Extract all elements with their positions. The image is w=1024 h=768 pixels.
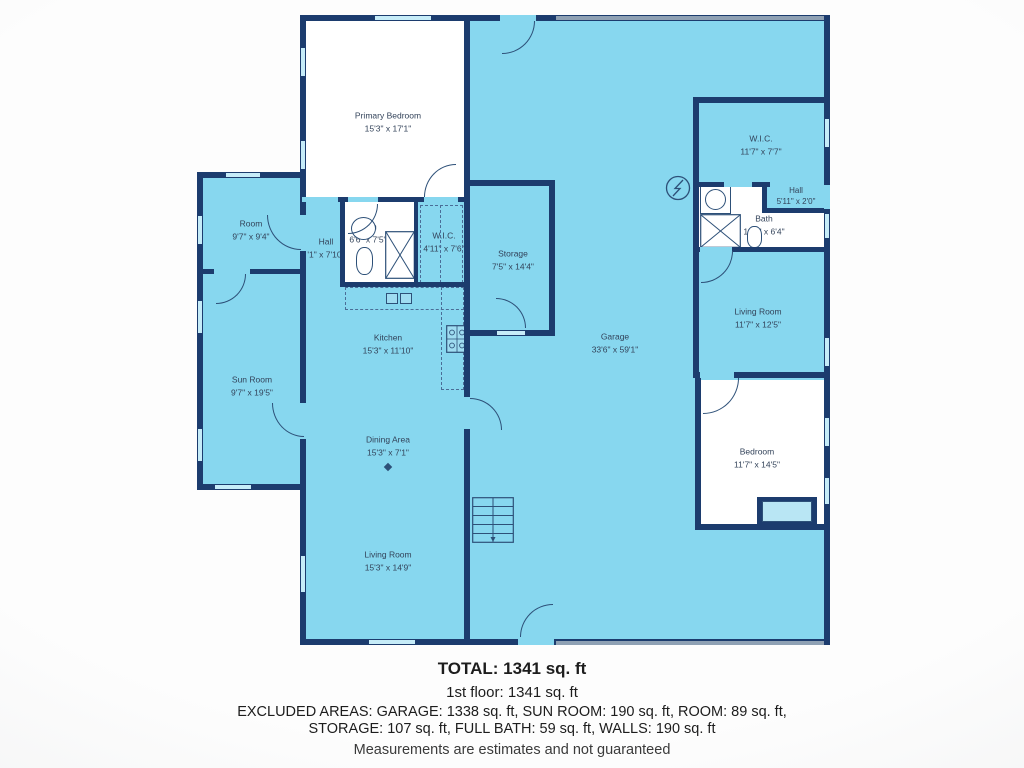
shower-icon bbox=[385, 231, 415, 279]
electrical-panel-icon bbox=[663, 173, 693, 203]
room-name: Hall bbox=[307, 236, 344, 249]
room-name: Hall bbox=[777, 185, 816, 196]
kitchen-sink-icon bbox=[386, 293, 398, 304]
room-label-kitchen: Kitchen 15'3" x 11'10" bbox=[363, 332, 414, 357]
room-dims: 15'3" x 14'9" bbox=[364, 561, 411, 574]
room-name: Storage bbox=[492, 248, 534, 261]
door-opening bbox=[824, 185, 830, 209]
window bbox=[214, 484, 252, 490]
window bbox=[197, 300, 203, 334]
floor-plan: Primary Bedroom 15'3" x 17'1" Room 9'7" … bbox=[0, 0, 1024, 768]
room-label-living-room-left: Living Room 15'3" x 14'9" bbox=[364, 549, 411, 574]
room-dims: 9'7" x 9'4" bbox=[232, 230, 269, 243]
wall bbox=[464, 180, 555, 186]
wall bbox=[762, 208, 830, 213]
room-name: Garage bbox=[592, 331, 639, 344]
door-opening bbox=[724, 182, 752, 187]
room-dims: 15'3" x 17'1" bbox=[355, 122, 421, 135]
room-dims: 9'7" x 19'5" bbox=[231, 386, 273, 399]
excluded-areas-text: EXCLUDED AREAS: GARAGE: 1338 sq. ft, SUN… bbox=[0, 704, 1024, 720]
wall bbox=[340, 197, 345, 287]
room-label-living-room-right: Living Room 11'7" x 12'5" bbox=[734, 306, 781, 331]
room-dims: 11'7" x 14'5" bbox=[734, 458, 780, 471]
toilet-icon bbox=[356, 247, 373, 275]
wall bbox=[693, 97, 830, 103]
room-dims: 11'7" x 12'5" bbox=[734, 318, 781, 331]
total-area-text: TOTAL: 1341 sq. ft bbox=[0, 659, 1024, 679]
room-name: Dining Area bbox=[366, 434, 410, 447]
room-label-dining-area: Dining Area 15'3" x 7'1" bbox=[366, 434, 410, 459]
kitchen-sink-icon bbox=[400, 293, 412, 304]
room-label-storage: Storage 7'5" x 14'4" bbox=[492, 248, 534, 273]
room-label-hall-right: Hall 5'11" x 2'0" bbox=[777, 185, 816, 207]
closet-bench bbox=[762, 501, 812, 522]
garage-door-strip bbox=[556, 641, 824, 645]
garage-door-strip bbox=[556, 16, 824, 20]
toilet-icon bbox=[747, 226, 762, 248]
room-label-room: Room 9'7" x 9'4" bbox=[232, 218, 269, 243]
door-opening bbox=[302, 197, 338, 202]
closet-dashed-rail bbox=[440, 205, 441, 283]
window bbox=[496, 330, 526, 336]
window bbox=[824, 213, 830, 239]
window bbox=[300, 47, 306, 77]
room-label-primary-bedroom: Primary Bedroom 15'3" x 17'1" bbox=[355, 110, 421, 135]
window bbox=[824, 417, 830, 447]
room-label-sun-room: Sun Room 9'7" x 19'5" bbox=[231, 374, 273, 399]
room-dims: 33'6" x 59'1" bbox=[592, 343, 639, 356]
shower-icon bbox=[700, 214, 741, 248]
room-dims: '1" x 7'10" bbox=[307, 248, 344, 261]
window bbox=[824, 337, 830, 367]
room-dims: 11'7" x 7'7" bbox=[740, 145, 781, 158]
stairs-icon bbox=[472, 497, 514, 543]
window bbox=[197, 428, 203, 462]
closet-dashed-outline bbox=[420, 205, 463, 283]
room-label-wic-right: W.I.C. 11'7" x 7'7" bbox=[740, 133, 781, 158]
room-name: Sun Room bbox=[231, 374, 273, 387]
wall bbox=[824, 15, 830, 645]
room-dims: 7'5" x 14'4" bbox=[492, 260, 534, 273]
disclaimer-text: Measurements are estimates and not guara… bbox=[0, 742, 1024, 758]
wall bbox=[693, 97, 699, 378]
window bbox=[374, 15, 432, 21]
door-opening bbox=[348, 197, 378, 202]
room-dims: 5'11" x 2'0" bbox=[777, 196, 816, 207]
wall bbox=[340, 282, 470, 287]
room-name: Kitchen bbox=[363, 332, 414, 345]
room-label-hall-left: Hall '1" x 7'10" bbox=[307, 236, 344, 261]
window bbox=[824, 118, 830, 148]
room-name: Living Room bbox=[734, 306, 781, 319]
window bbox=[824, 477, 830, 505]
room-label-bedroom-right: Bedroom 11'7" x 14'5" bbox=[734, 446, 780, 471]
window bbox=[300, 555, 306, 593]
room-dims: 15'3" x 11'10" bbox=[363, 344, 414, 357]
room-name: Bath bbox=[743, 213, 784, 226]
wall bbox=[695, 378, 701, 530]
window bbox=[225, 172, 261, 178]
room-dims: 15'3" x 7'1" bbox=[366, 446, 410, 459]
room-label-garage: Garage 33'6" x 59'1" bbox=[592, 331, 639, 356]
wall bbox=[414, 202, 418, 287]
wall bbox=[300, 15, 306, 645]
room-name: Primary Bedroom bbox=[355, 110, 421, 123]
room-name: W.I.C. bbox=[740, 133, 781, 146]
room-name: Bedroom bbox=[734, 446, 780, 459]
room-name: Living Room bbox=[364, 549, 411, 562]
room-name: Room bbox=[232, 218, 269, 231]
door-opening bbox=[424, 197, 458, 202]
window bbox=[197, 215, 203, 245]
door-opening bbox=[518, 639, 554, 645]
window bbox=[300, 140, 306, 170]
first-floor-text: 1st floor: 1341 sq. ft bbox=[0, 684, 1024, 701]
sink-icon bbox=[705, 189, 726, 210]
excluded-areas-text: STORAGE: 107 sq. ft, FULL BATH: 59 sq. f… bbox=[0, 721, 1024, 737]
wall bbox=[549, 180, 555, 336]
window bbox=[368, 639, 416, 645]
